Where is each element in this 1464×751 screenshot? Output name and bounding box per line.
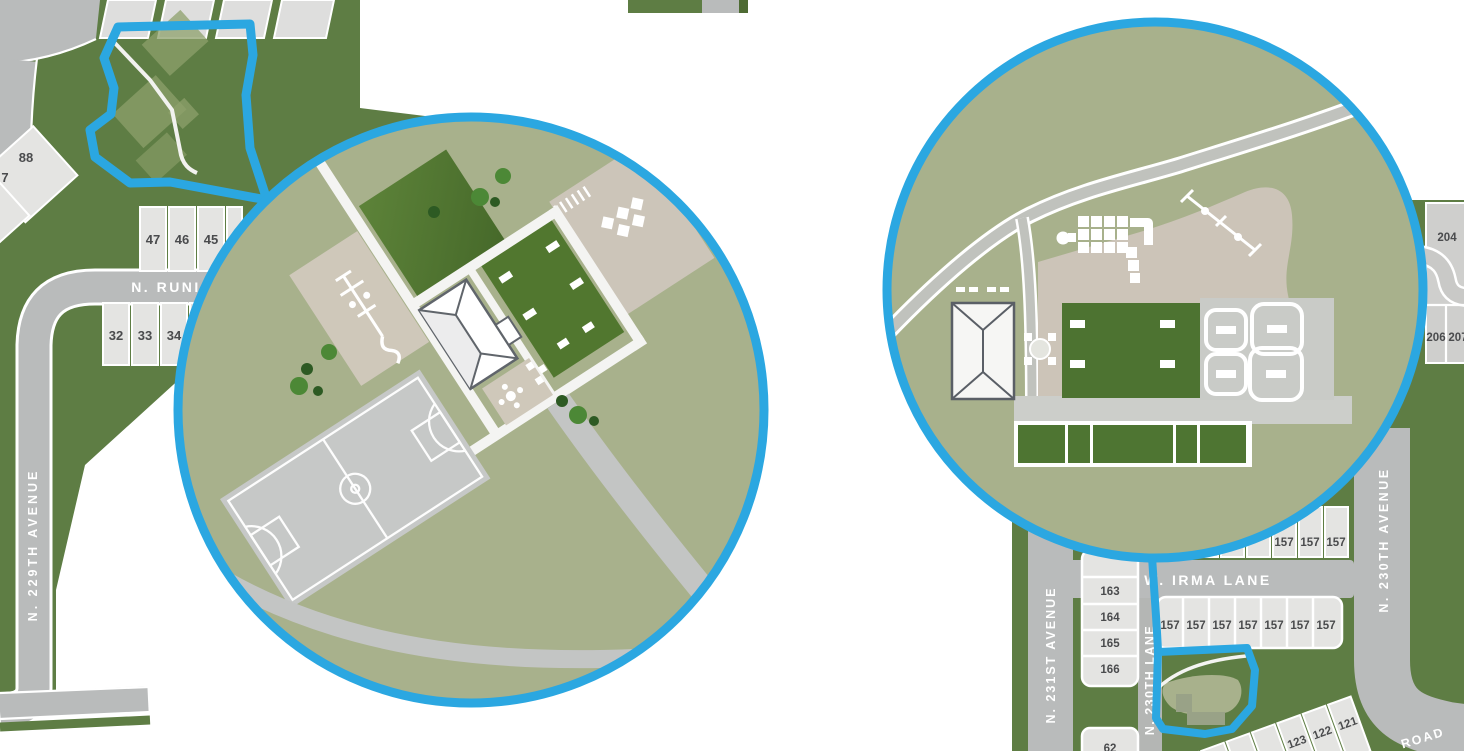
lot-number: 206	[1426, 332, 1445, 344]
lot-number: 204	[1437, 232, 1457, 244]
lot-number: 157	[1238, 620, 1257, 632]
lot-number: 166	[1100, 664, 1119, 676]
lot-col-163: 163 164 165 166	[1082, 550, 1138, 686]
walkway	[1014, 396, 1352, 424]
lot-number: 62	[1104, 743, 1117, 751]
street-label-229th: N. 229TH AVENUE	[26, 469, 40, 622]
park-callout-circle	[887, 22, 1423, 558]
lot-number: 157	[1274, 537, 1293, 549]
lot-cell	[274, 0, 334, 38]
lot-number: 32	[109, 328, 123, 343]
top-map-strip	[628, 0, 748, 13]
ramada	[952, 287, 1014, 399]
lot-number: 164	[1100, 612, 1120, 624]
map-screenshot: 88 7 47 46 45 N. RUNI 32 33 34 N. 229TH …	[0, 0, 1464, 751]
lot-number: 47	[146, 232, 160, 247]
site-structure	[1187, 712, 1225, 725]
street-label-irma: W. IRMA LANE	[1144, 572, 1271, 588]
lot-number: 7	[1, 170, 8, 185]
map-canvas: 88 7 47 46 45 N. RUNI 32 33 34 N. 229TH …	[0, 0, 1464, 751]
shade-courts	[1200, 298, 1334, 400]
lot-number: 157	[1186, 620, 1205, 632]
lot-number: 88	[19, 150, 33, 165]
lot-number: 46	[175, 232, 189, 247]
garden-plots	[1014, 421, 1252, 467]
lot-cell	[216, 0, 272, 38]
road-bottom-stub	[0, 699, 148, 706]
site-structure	[1176, 694, 1192, 712]
lot-cell	[1325, 507, 1348, 557]
lot-number: 207	[1448, 332, 1464, 344]
lot-number: 45	[204, 232, 218, 247]
lot-number: 157	[1264, 620, 1283, 632]
lot-number: 157	[1300, 537, 1319, 549]
street-label-231st-ave: N. 231ST AVENUE	[1044, 587, 1058, 724]
lot-row-lower-157: 157 157 157 157 157 157 157	[1157, 597, 1342, 648]
lot-number: 157	[1290, 620, 1309, 632]
lot-number: 157	[1326, 537, 1345, 549]
lot-number: 34	[167, 328, 182, 343]
lot-number: 157	[1160, 620, 1179, 632]
lot-cell	[100, 0, 156, 38]
lot-number: 165	[1100, 638, 1120, 650]
lot-number: 163	[1100, 586, 1119, 598]
street-label-230th-ave: N. 230TH AVENUE	[1377, 467, 1391, 612]
multiuse-court	[1062, 303, 1200, 398]
lot-62: 62	[1082, 728, 1138, 751]
lot-number: 33	[138, 328, 152, 343]
lot-number: 157	[1212, 620, 1231, 632]
lot-number: 157	[1316, 620, 1335, 632]
street-label-runi: N. RUNI	[131, 279, 201, 295]
